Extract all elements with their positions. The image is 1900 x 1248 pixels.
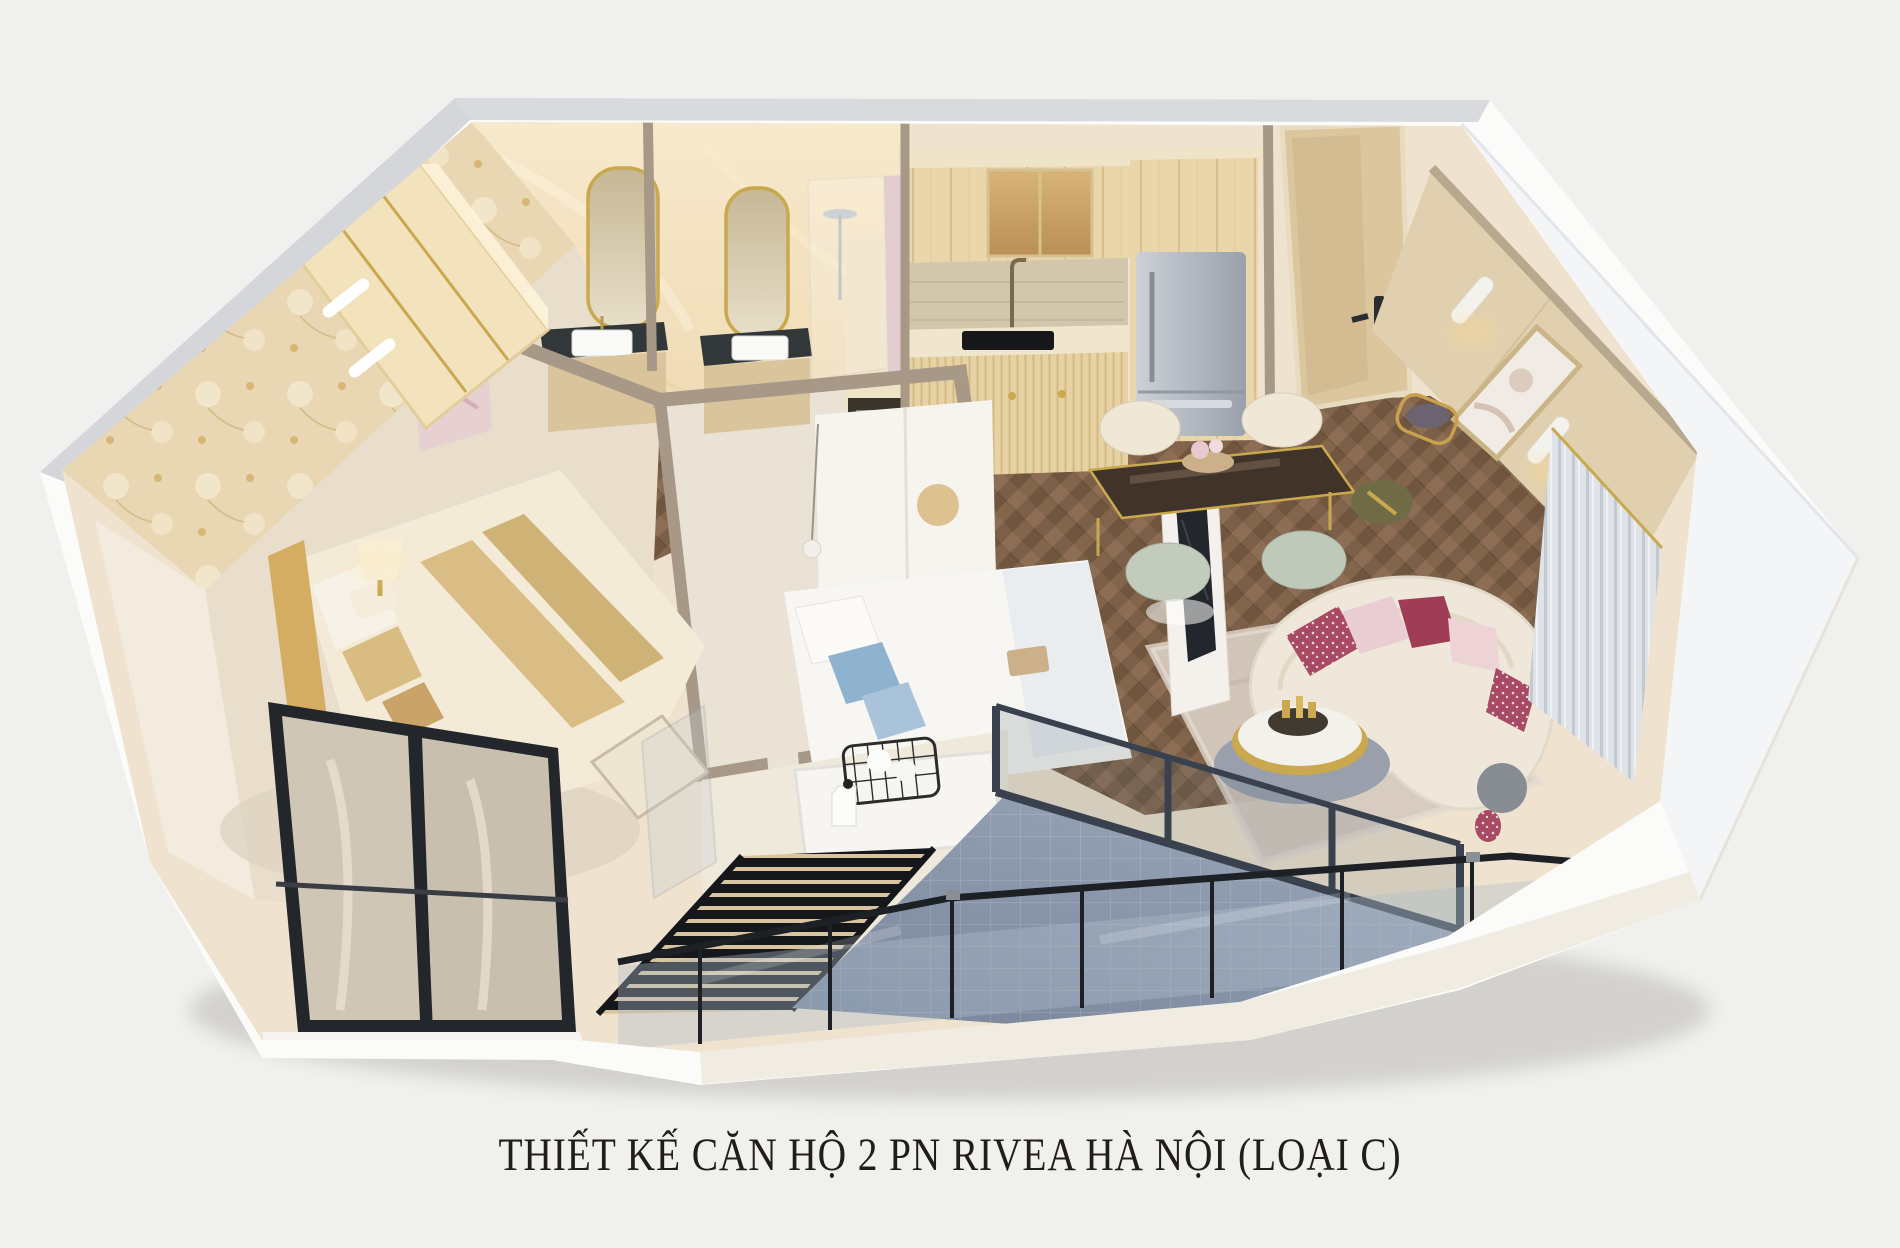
apartment-3d-render: [0, 0, 1900, 1248]
entrance: [1282, 124, 1410, 410]
floorplan-render-page: THIẾT KẾ CĂN HỘ 2 PN RIVEA HÀ NỘI (LOẠI …: [0, 0, 1900, 1248]
vanity-sink: [572, 330, 632, 356]
vanity2-sink: [732, 336, 788, 360]
dining-chair-cream: [1242, 393, 1322, 447]
caption-title: THIẾT KẾ CĂN HỘ 2 PN RIVEA HÀ NỘI (LOẠI …: [498, 1128, 1401, 1182]
shower-glass: [808, 176, 888, 380]
decor-vase: [1475, 810, 1501, 842]
dining-chair-sage: [1126, 543, 1210, 601]
centerpiece-flowers: [1182, 451, 1234, 473]
side-table: [1477, 763, 1527, 813]
dining-chair-cream: [1100, 401, 1180, 455]
kitchen-sink: [962, 331, 1054, 350]
bathroom2-mirror: [726, 188, 788, 338]
dining-chair-sage: [1262, 531, 1346, 589]
pendant-light: [803, 540, 821, 558]
kitchen-backsplash: [905, 258, 1128, 336]
bed2-book: [1006, 645, 1049, 676]
detergent-bottle: [832, 786, 856, 826]
glass-partition: [642, 706, 716, 898]
wall-top-band-back: [455, 98, 1490, 122]
window-glass: [422, 738, 562, 1020]
closet-gold-accent: [917, 484, 959, 526]
master-bedroom-window: [262, 702, 586, 1058]
